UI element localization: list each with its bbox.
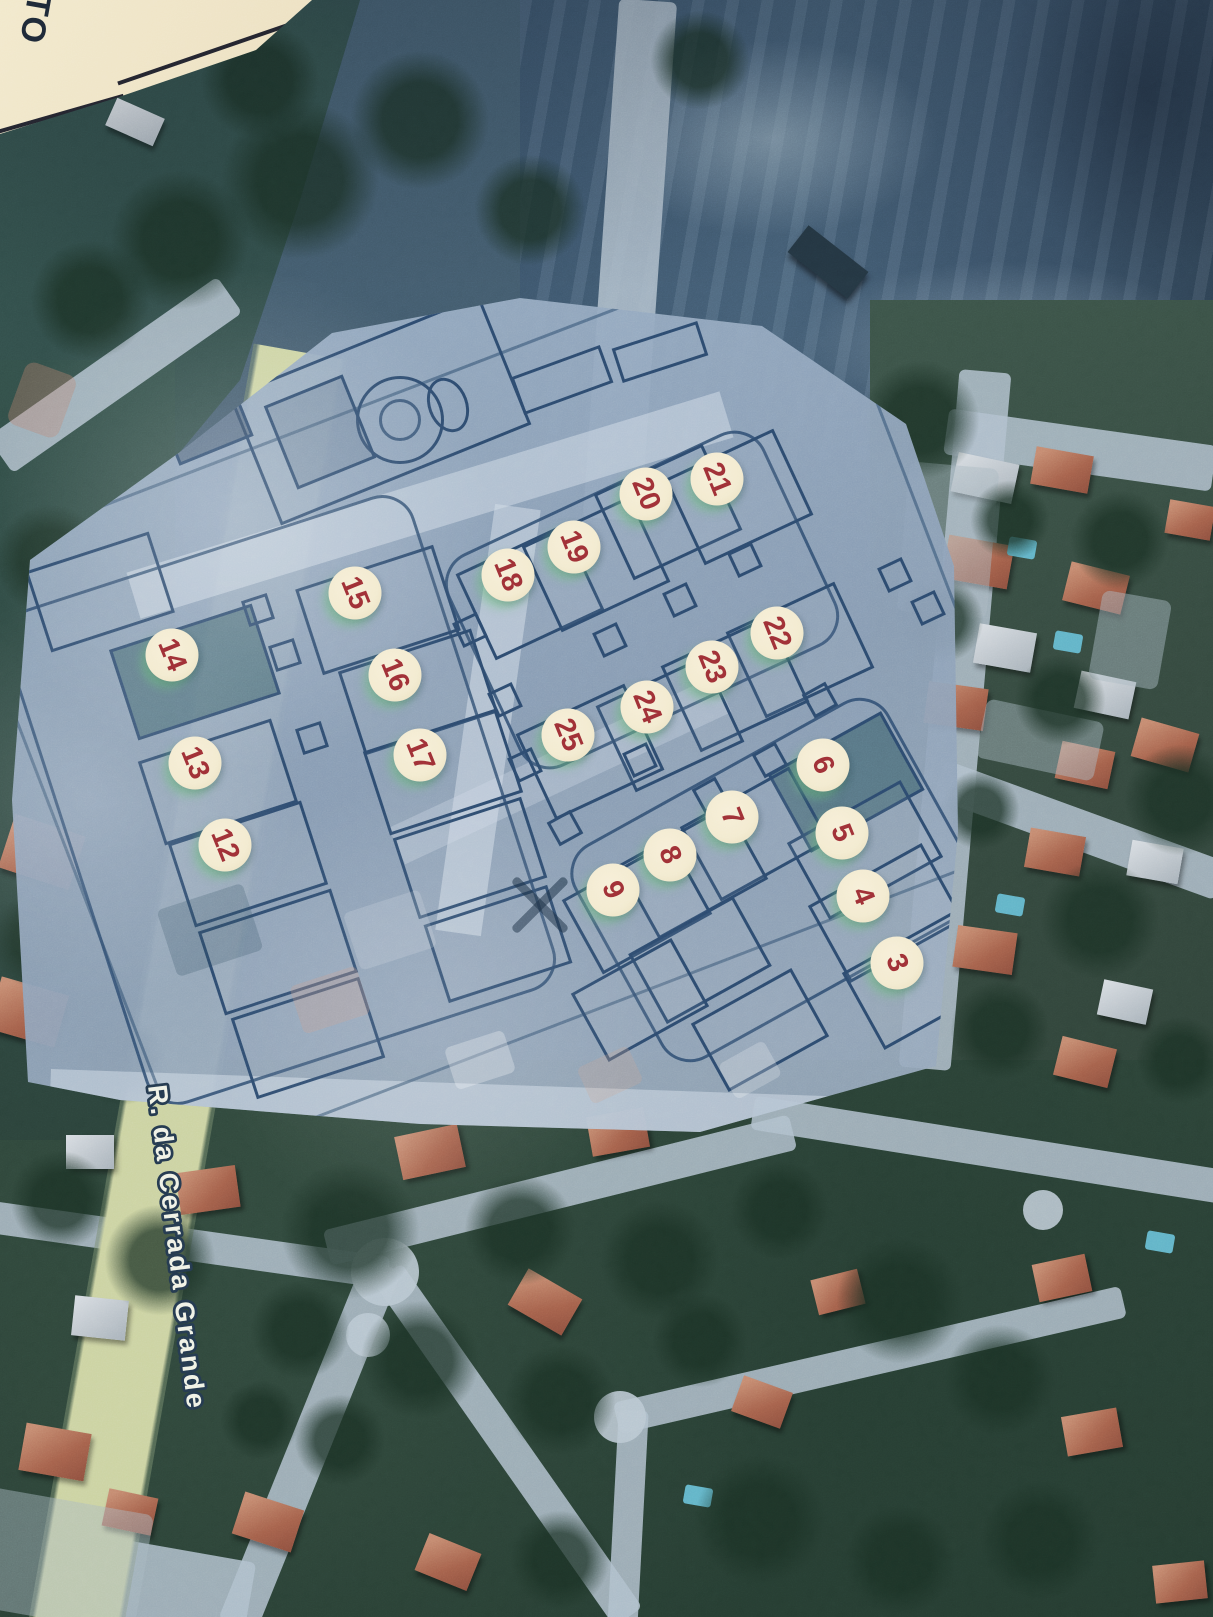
lot-marker-number: 14 — [153, 635, 192, 676]
lot-marker-number: 13 — [176, 743, 215, 784]
lot-marker-number: 8 — [654, 842, 687, 868]
lot-marker-4: 4 — [837, 870, 890, 923]
lot-marker-12: 12 — [199, 819, 252, 872]
lot-marker-22: 22 — [751, 607, 804, 660]
lot-marker-3: 3 — [871, 937, 924, 990]
lot-marker-9: 9 — [587, 864, 640, 917]
lot-marker-number: 15 — [336, 573, 375, 614]
lot-marker-17: 17 — [394, 729, 447, 782]
lot-marker-19: 19 — [548, 521, 601, 574]
aerial-photo: 34567891213141516171819202122232425 R. d… — [0, 0, 1213, 1617]
lot-marker-15: 15 — [329, 567, 382, 620]
lot-marker-number: 3 — [881, 950, 914, 976]
lot-marker-number: 22 — [758, 613, 797, 654]
lot-marker-number: 25 — [549, 715, 588, 756]
lot-marker-number: 18 — [489, 555, 528, 596]
lot-marker-number: 17 — [401, 735, 440, 776]
lot-marker-13: 13 — [169, 737, 222, 790]
lot-marker-number: 6 — [807, 752, 840, 778]
lot-marker-23: 23 — [686, 641, 739, 694]
lot-marker-7: 7 — [706, 791, 759, 844]
lot-marker-16: 16 — [369, 649, 422, 702]
lot-marker-number: 24 — [628, 687, 667, 728]
lot-marker-number: 7 — [716, 804, 749, 830]
lot-marker-number: 4 — [847, 883, 880, 909]
lot-marker-20: 20 — [620, 468, 673, 521]
lot-marker-14: 14 — [146, 629, 199, 682]
lot-marker-6: 6 — [797, 739, 850, 792]
lot-marker-number: 19 — [555, 527, 594, 568]
lot-marker-number: 20 — [627, 474, 666, 515]
lot-marker-24: 24 — [621, 681, 674, 734]
lot-marker-18: 18 — [482, 549, 535, 602]
paper-label-text: TO — [11, 0, 58, 48]
lot-marker-8: 8 — [644, 829, 697, 882]
lot-marker-number: 5 — [826, 820, 859, 846]
lot-marker-25: 25 — [542, 709, 595, 762]
lot-marker-number: 21 — [698, 459, 737, 500]
lot-marker-5: 5 — [816, 807, 869, 860]
street-name-label: R. da Cerrada Grande — [118, 1070, 288, 1510]
lot-marker-21: 21 — [691, 453, 744, 506]
lot-marker-number: 9 — [597, 877, 630, 903]
lot-marker-number: 23 — [693, 647, 732, 688]
lot-marker-number: 12 — [206, 825, 245, 866]
lot-marker-number: 16 — [376, 655, 415, 696]
street-name-text: R. da Cerrada Grande — [142, 1083, 212, 1412]
